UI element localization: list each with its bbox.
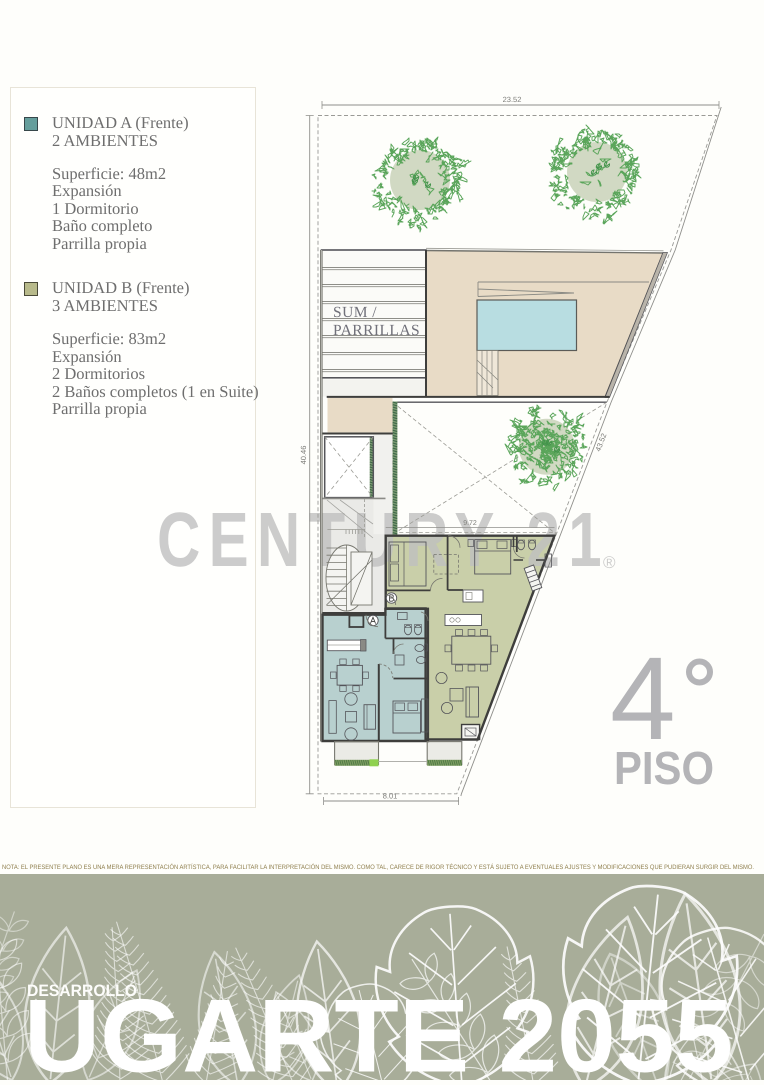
svg-text:PISO: PISO [614,742,714,794]
svg-text:8.01: 8.01 [383,792,398,801]
svg-text:®: ® [603,553,616,572]
svg-text:23.52: 23.52 [503,95,522,104]
svg-text:PARRILLAS: PARRILLAS [333,322,420,339]
svg-text:NOTA: EL PRESENTE PLANO ES UNA: NOTA: EL PRESENTE PLANO ES UNA MERA REPR… [2,863,754,871]
svg-text:9.72: 9.72 [463,520,477,527]
svg-text:UGARTE 2055: UGARTE 2055 [24,979,733,1081]
svg-text:40.46: 40.46 [299,446,308,465]
svg-text:SUM /: SUM / [333,304,377,321]
svg-text:43.52: 43.52 [593,432,608,453]
